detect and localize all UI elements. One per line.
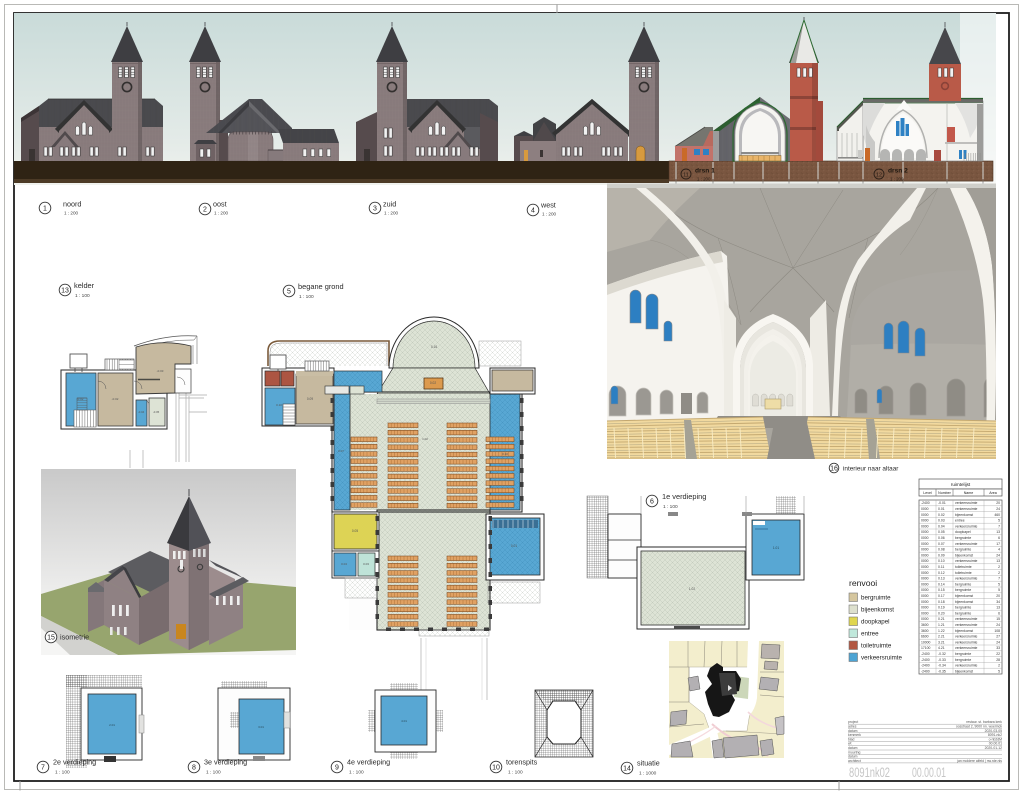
svg-text:24: 24 (996, 623, 1000, 627)
svg-text:bergruimte: bergruimte (955, 588, 971, 592)
svg-text:1.21: 1.21 (938, 623, 945, 627)
svg-text:bergruimte: bergruimte (955, 548, 971, 552)
svg-text:Level: Level (923, 491, 932, 495)
svg-text:15: 15 (996, 617, 1000, 621)
svg-text:0.07: 0.07 (338, 449, 344, 453)
svg-text:0000: 0000 (921, 606, 929, 610)
svg-text:0.10: 0.10 (938, 559, 945, 563)
svg-text:0000: 0000 (921, 524, 929, 528)
svg-text:0000: 0000 (921, 611, 929, 615)
svg-text:13: 13 (996, 559, 1000, 563)
svg-text:-0.35: -0.35 (938, 669, 946, 673)
svg-text:1 : 100: 1 : 100 (349, 770, 364, 776)
svg-text:toiletruimte: toiletruimte (955, 571, 972, 575)
svg-text:0.01: 0.01 (938, 507, 945, 511)
svg-text:renvooi: renvooi (849, 578, 877, 588)
svg-text:bijeenkomst: bijeenkomst (955, 553, 973, 557)
svg-text:5: 5 (998, 669, 1000, 673)
svg-text:15: 15 (47, 635, 55, 642)
svg-text:33: 33 (996, 646, 1000, 650)
svg-text:7: 7 (41, 765, 45, 772)
svg-text:-0.32: -0.32 (938, 652, 946, 656)
svg-text:Area: Area (989, 491, 997, 495)
svg-text:0.17: 0.17 (938, 594, 945, 598)
svg-text:architect: architect (848, 759, 861, 763)
svg-text:-0.34: -0.34 (938, 664, 946, 668)
svg-text:5: 5 (998, 582, 1000, 586)
svg-text:bijeenkomst: bijeenkomst (955, 594, 973, 598)
svg-text:oost: oost (213, 200, 227, 209)
svg-text:verkeersruimte: verkeersruimte (955, 623, 978, 627)
svg-text:1 : 100: 1 : 100 (299, 294, 314, 300)
svg-text:-2400: -2400 (921, 501, 930, 505)
svg-text:2.21: 2.21 (938, 635, 945, 639)
svg-text:0.20: 0.20 (938, 611, 945, 615)
svg-text:5: 5 (287, 289, 291, 296)
svg-text:0000: 0000 (921, 548, 929, 552)
svg-text:west: west (540, 201, 556, 210)
svg-text:1 : 200: 1 : 200 (697, 177, 711, 182)
svg-text:27: 27 (996, 635, 1000, 639)
svg-text:9: 9 (335, 765, 339, 772)
svg-text:1: 1 (43, 206, 47, 213)
svg-text:0.10: 0.10 (276, 403, 282, 407)
svg-text:0000: 0000 (921, 530, 929, 534)
svg-text:0.05: 0.05 (352, 529, 358, 533)
svg-text:doopkapel: doopkapel (861, 619, 890, 626)
svg-text:2: 2 (203, 207, 207, 214)
svg-text:0.09: 0.09 (307, 397, 313, 401)
svg-text:-0.04: -0.04 (138, 410, 145, 414)
svg-text:0000: 0000 (921, 617, 929, 621)
svg-text:isometrie: isometrie (60, 633, 89, 642)
svg-text:6600: 6600 (921, 635, 929, 639)
svg-text:3.01: 3.01 (258, 725, 264, 729)
svg-text:4.21: 4.21 (938, 646, 945, 650)
svg-text:13: 13 (61, 288, 69, 295)
svg-text:1 : 100: 1 : 100 (75, 293, 90, 299)
svg-text:0.02: 0.02 (430, 381, 436, 385)
svg-text:verkeersruimte: verkeersruimte (955, 501, 978, 505)
svg-text:-0.01: -0.01 (938, 501, 946, 505)
svg-text:verkeersruimte: verkeersruimte (955, 664, 978, 668)
svg-text:verkeersruimte: verkeersruimte (955, 507, 978, 511)
svg-text:0.16: 0.16 (431, 345, 437, 349)
svg-text:0000: 0000 (921, 588, 929, 592)
svg-text:5: 5 (998, 588, 1000, 592)
svg-text:1 : 100: 1 : 100 (508, 770, 523, 776)
svg-text:bijeenkomst: bijeenkomst (955, 629, 973, 633)
svg-text:6: 6 (650, 499, 654, 506)
svg-text:verkeersruimte: verkeersruimte (955, 617, 978, 621)
svg-text:1.22: 1.22 (938, 629, 945, 633)
svg-text:bergruimte: bergruimte (955, 536, 971, 540)
svg-text:verkeersruimte: verkeersruimte (955, 635, 978, 639)
svg-text:6: 6 (998, 611, 1000, 615)
svg-text:24: 24 (996, 640, 1000, 644)
svg-text:0000: 0000 (921, 507, 929, 511)
svg-text:1 : 100: 1 : 100 (206, 770, 221, 776)
svg-text:00.00.01: 00.00.01 (912, 765, 946, 780)
svg-text:0.19: 0.19 (938, 606, 945, 610)
svg-text:bergruimte: bergruimte (861, 595, 891, 602)
svg-text:0.11: 0.11 (938, 565, 944, 569)
svg-text:20: 20 (996, 594, 1000, 598)
svg-text:1 : 100: 1 : 100 (663, 504, 678, 510)
svg-text:bergruimte: bergruimte (955, 658, 971, 662)
svg-text:2020-01-12: 2020-01-12 (985, 746, 1002, 750)
svg-text:3600: 3600 (921, 623, 929, 627)
svg-text:16: 16 (830, 466, 838, 473)
svg-text:Number: Number (938, 491, 952, 495)
svg-text:1 : 200: 1 : 200 (64, 211, 78, 216)
svg-text:2.01: 2.01 (109, 723, 115, 727)
svg-text:0.13: 0.13 (938, 577, 945, 581)
svg-text:verkeersruimte: verkeersruimte (955, 559, 978, 563)
svg-text:entree: entree (955, 519, 965, 523)
svg-text:kelder: kelder (74, 281, 95, 290)
svg-text:3: 3 (373, 206, 377, 213)
svg-text:-0.33: -0.33 (938, 658, 946, 662)
svg-text:13: 13 (996, 606, 1000, 610)
svg-text:0.04: 0.04 (938, 524, 945, 528)
svg-text:1.02: 1.02 (689, 587, 695, 591)
svg-text:ruimtelijst: ruimtelijst (951, 482, 971, 487)
svg-text:1 : 200: 1 : 200 (214, 211, 228, 216)
svg-text:0.09: 0.09 (938, 553, 945, 557)
svg-text:toiletruimte: toiletruimte (861, 643, 892, 650)
svg-text:0.12: 0.12 (938, 571, 945, 575)
svg-text:zuid: zuid (383, 200, 396, 209)
svg-text:460: 460 (994, 513, 1000, 517)
svg-text:11: 11 (683, 173, 689, 179)
svg-text:bergruimte: bergruimte (955, 611, 971, 615)
svg-text:doopkapel: doopkapel (955, 530, 971, 534)
svg-text:bijeenkomst: bijeenkomst (955, 600, 973, 604)
svg-text:0.14: 0.14 (938, 582, 945, 586)
svg-text:bijeenkomst: bijeenkomst (955, 513, 973, 517)
svg-text:1 : 100: 1 : 100 (55, 770, 70, 776)
svg-text:0000: 0000 (921, 542, 929, 546)
svg-text:bergruimte: bergruimte (955, 606, 971, 610)
svg-text:-0.03: -0.03 (157, 369, 164, 373)
svg-text:7: 7 (998, 577, 1000, 581)
svg-text:17100: 17100 (921, 646, 931, 650)
svg-text:4: 4 (998, 548, 1000, 552)
svg-text:0000: 0000 (921, 513, 929, 517)
svg-text:-2400: -2400 (921, 658, 930, 662)
svg-text:3.21: 3.21 (938, 640, 945, 644)
svg-text:6: 6 (998, 536, 1000, 540)
svg-text:7: 7 (998, 524, 1000, 528)
svg-text:torenspits: torenspits (506, 758, 538, 767)
svg-text:24: 24 (996, 553, 1000, 557)
svg-text:verkeersruimte: verkeersruimte (955, 577, 978, 581)
svg-text:bijeenkomst: bijeenkomst (955, 669, 973, 673)
svg-text:drsn 1: drsn 1 (695, 168, 715, 175)
svg-text:1 : 200: 1 : 200 (890, 177, 904, 182)
svg-text:interieur naar altaar: interieur naar altaar (843, 466, 899, 473)
svg-text:20: 20 (996, 501, 1000, 505)
svg-text:0000: 0000 (921, 559, 929, 563)
svg-text:0.21: 0.21 (938, 617, 945, 621)
svg-text:13: 13 (996, 530, 1000, 534)
svg-text:-2400: -2400 (921, 652, 930, 656)
svg-text:noord: noord (63, 200, 81, 209)
svg-text:0.04: 0.04 (341, 562, 347, 566)
svg-text:2: 2 (998, 664, 1000, 668)
svg-text:0.05: 0.05 (938, 530, 945, 534)
svg-text:0000: 0000 (921, 553, 929, 557)
svg-text:0000: 0000 (921, 565, 929, 569)
svg-text:0000: 0000 (921, 577, 929, 581)
svg-text:22: 22 (996, 652, 1000, 656)
svg-text:verkeersruimte: verkeersruimte (955, 646, 978, 650)
svg-text:0000: 0000 (921, 582, 929, 586)
svg-text:1 : 200: 1 : 200 (384, 211, 398, 216)
svg-text:8091nk02: 8091nk02 (849, 765, 890, 780)
svg-text:3e verdieping: 3e verdieping (204, 758, 247, 767)
svg-text:0000: 0000 (921, 594, 929, 598)
svg-text:0000: 0000 (921, 536, 929, 540)
svg-text:24: 24 (996, 507, 1000, 511)
svg-text:2: 2 (998, 571, 1000, 575)
svg-text:3600: 3600 (921, 629, 929, 633)
svg-text:4e verdieping: 4e verdieping (347, 758, 390, 767)
svg-text:situatie: situatie (637, 759, 660, 768)
svg-text:0.08: 0.08 (938, 548, 945, 552)
svg-text:verkeersruimte: verkeersruimte (955, 640, 978, 644)
svg-text:bergruimte: bergruimte (955, 652, 971, 656)
svg-text:entree: entree (861, 631, 879, 638)
svg-text:0000: 0000 (921, 571, 929, 575)
svg-text:17: 17 (996, 542, 1000, 546)
svg-text:0.03: 0.03 (938, 519, 945, 523)
svg-text:-0.05: -0.05 (153, 410, 160, 414)
svg-text:drsn 2: drsn 2 (888, 168, 908, 175)
svg-text:2: 2 (998, 565, 1000, 569)
svg-text:verkeersruimte: verkeersruimte (955, 542, 978, 546)
svg-text:bergruimte: bergruimte (955, 582, 971, 586)
svg-text:verkeersruimte: verkeersruimte (955, 524, 978, 528)
svg-text:108: 108 (994, 629, 1000, 633)
svg-text:-0.02: -0.02 (77, 397, 84, 401)
svg-text:begane grond: begane grond (298, 282, 344, 291)
svg-text:2e verdieping: 2e verdieping (53, 758, 96, 767)
svg-text:jan moldere alfeld | nw.rde.: jan moldere alfeld | nw.rde.nls (956, 759, 1002, 763)
svg-text:14: 14 (623, 766, 631, 773)
svg-text:-0.02: -0.02 (112, 397, 119, 401)
svg-text:12: 12 (876, 173, 882, 179)
svg-text:4.01: 4.01 (401, 719, 407, 723)
svg-text:0.03: 0.03 (363, 562, 369, 566)
svg-text:0000: 0000 (921, 519, 929, 523)
svg-text:10: 10 (492, 765, 500, 772)
svg-text:5: 5 (998, 519, 1000, 523)
svg-text:toiletruimte: toiletruimte (955, 565, 972, 569)
svg-text:0.18: 0.18 (938, 600, 945, 604)
svg-text:verkeersruimte: verkeersruimte (861, 655, 902, 662)
svg-text:bijeenkomst: bijeenkomst (861, 607, 894, 614)
svg-text:8: 8 (192, 765, 196, 772)
svg-text:1e verdieping: 1e verdieping (662, 492, 706, 501)
svg-text:28: 28 (996, 658, 1000, 662)
svg-text:4: 4 (531, 208, 535, 215)
svg-text:-2400: -2400 (921, 669, 930, 673)
svg-text:0.15: 0.15 (938, 588, 945, 592)
svg-text:0.02: 0.02 (938, 513, 945, 517)
svg-text:1 : 1000: 1 : 1000 (639, 771, 657, 777)
svg-text:0.01: 0.01 (511, 544, 517, 548)
svg-text:Name: Name (964, 491, 974, 495)
svg-text:0000: 0000 (921, 600, 929, 604)
svg-text:-2400: -2400 (921, 664, 930, 668)
svg-text:10000: 10000 (921, 640, 931, 644)
svg-text:1.02: 1.02 (422, 437, 428, 441)
svg-text:34: 34 (996, 600, 1000, 604)
svg-text:1.01: 1.01 (773, 546, 779, 550)
svg-text:1 : 200: 1 : 200 (542, 212, 556, 217)
svg-text:0.10: 0.10 (502, 452, 508, 456)
svg-text:0.07: 0.07 (938, 542, 945, 546)
svg-text:0.06: 0.06 (938, 536, 945, 540)
